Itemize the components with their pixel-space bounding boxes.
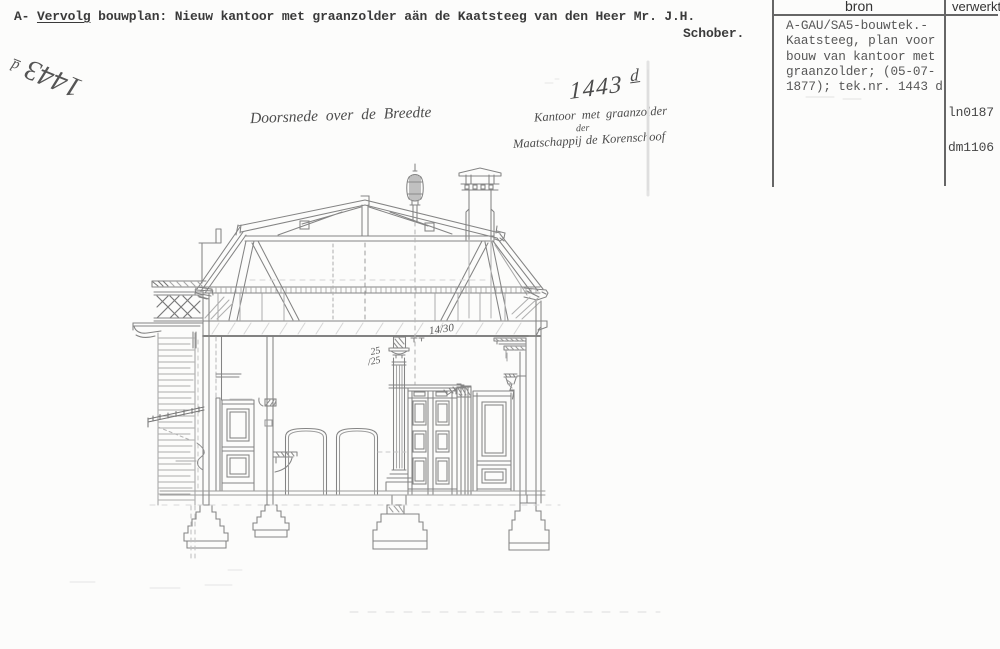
svg-text:/25: /25 xyxy=(366,355,382,369)
svg-text:14/30: 14/30 xyxy=(428,322,455,337)
